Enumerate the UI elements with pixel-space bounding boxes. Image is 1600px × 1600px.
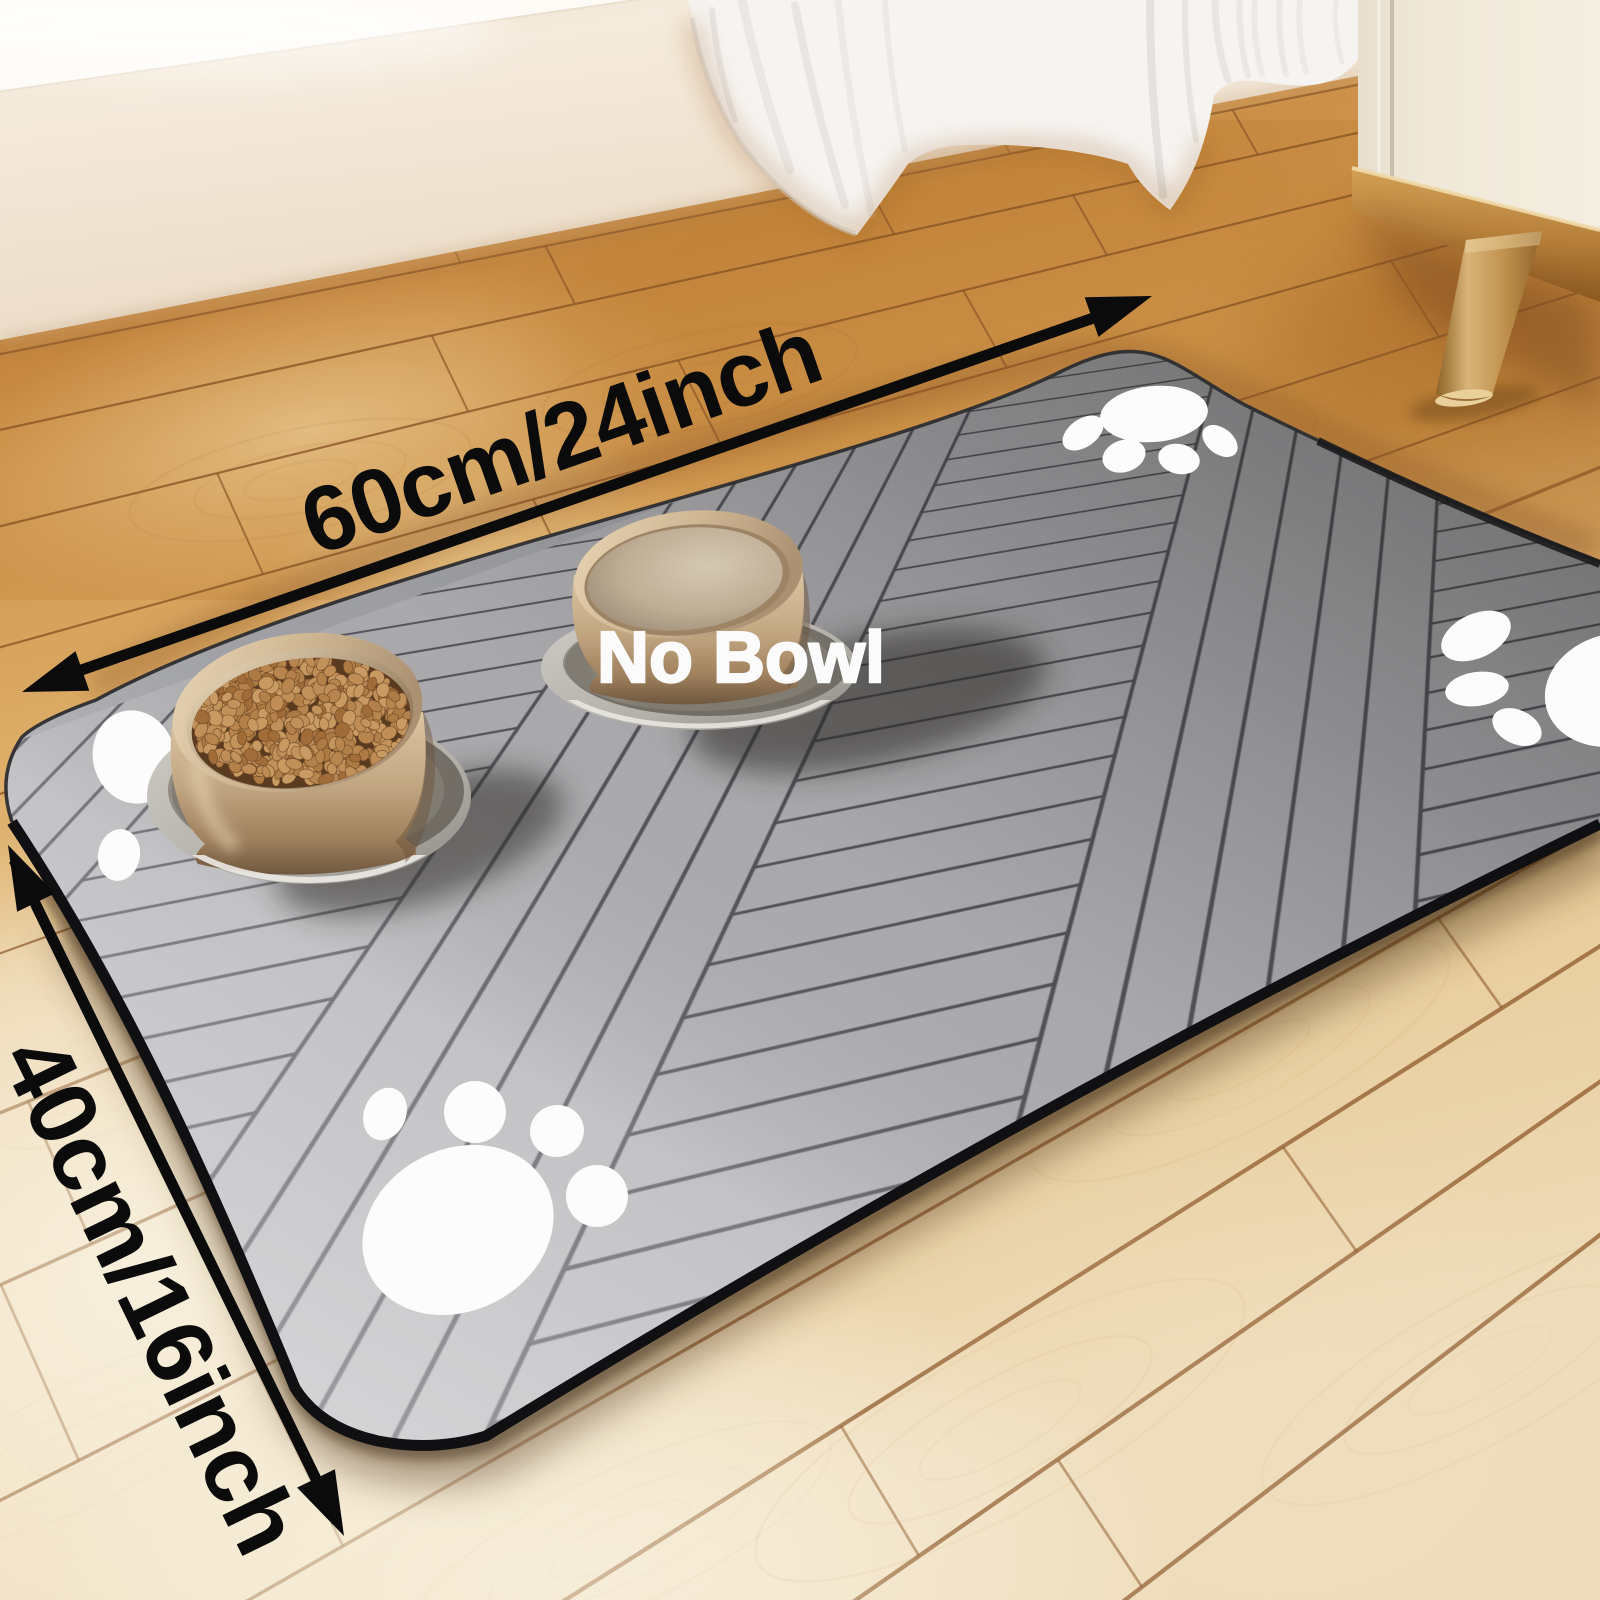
svg-text:No Bowl: No Bowl [597, 618, 885, 698]
